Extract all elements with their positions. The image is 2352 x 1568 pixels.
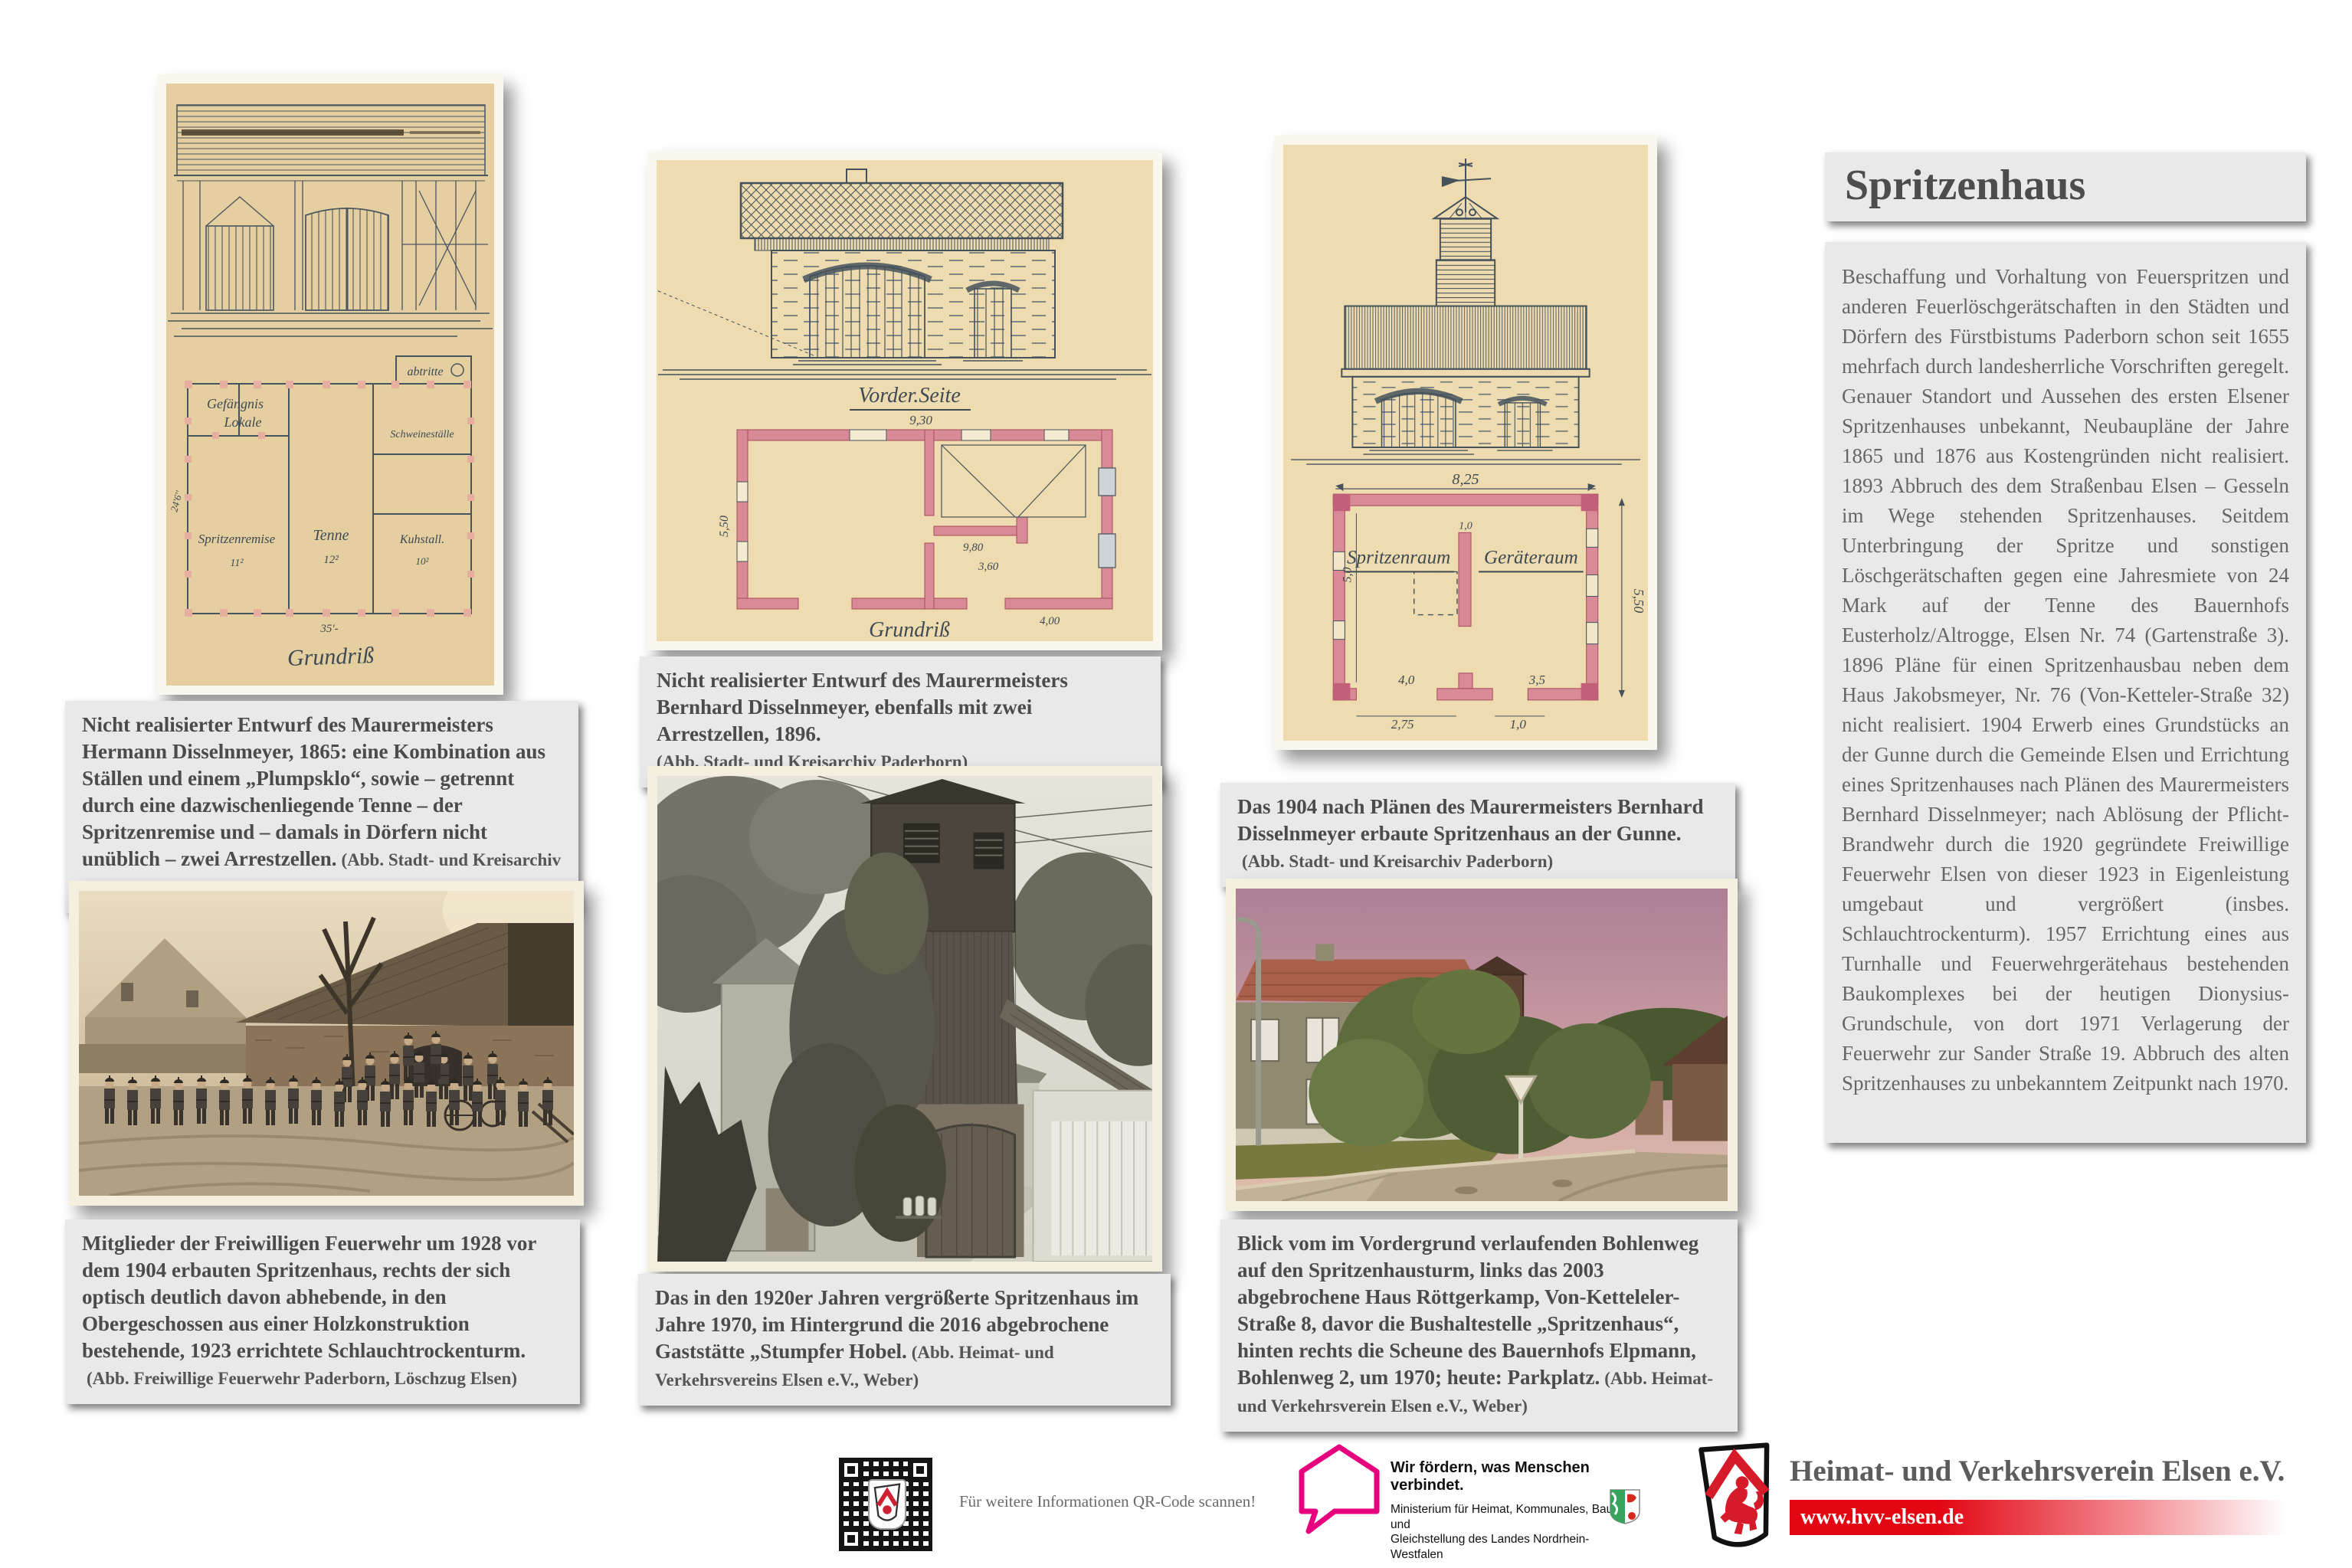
label-d3-dim-b4: 1,0: [1510, 717, 1527, 732]
label-kuhstall: Kuhstall.: [399, 533, 444, 546]
caption-1970-text: Das in den 1920er Jahren vergrößerte Spr…: [655, 1286, 1138, 1363]
caption-photo-1928: Mitglieder der Freiwilligen Feuerwehr um…: [65, 1219, 580, 1404]
qr-finder-icon: [839, 1458, 863, 1482]
drawing-1896-graphic: Vorder.Seite: [657, 160, 1153, 641]
label-grundriss-1: Grundriß: [287, 643, 374, 671]
ministry-slogan: Wir fördern, was Menschen verbindet.: [1391, 1459, 1620, 1494]
label-spritzenraum: Spritzenraum: [1347, 547, 1450, 568]
label-d3-dim-b3: 2,75: [1391, 717, 1414, 732]
caption-1896-text: Nicht realisierter Entwurf des Maurermei…: [657, 669, 1068, 745]
label-gefaengnis: Gefängnis: [207, 396, 264, 411]
ministry-name-line2: Gleichstellung des Landes Nordrhein-West…: [1391, 1532, 1620, 1562]
photo-bohlenweg-1970: [1226, 879, 1738, 1211]
hvv-url-bar: www.hvv-elsen.de: [1790, 1500, 2286, 1535]
page-title: Spritzenhaus: [1845, 160, 2286, 211]
drawing-1904-graphic: 8,25 Spritzenraum: [1283, 145, 1648, 741]
photo-firefighters-graphic: [79, 891, 574, 1196]
caption-1928-credit: (Abb. Freiwillige Feuerwehr Paderborn, L…: [87, 1369, 517, 1388]
ministry-name-line1: Ministerium für Heimat, Kommunales, Bau …: [1391, 1502, 1620, 1532]
label-d3-dim-b1: 4,0: [1398, 673, 1415, 687]
label-dim-left: 24'6'': [168, 489, 185, 513]
caption-1904-text: Das 1904 nach Plänen des Maurermeisters …: [1237, 795, 1703, 845]
label-d2-dim-inner: 3,60: [978, 561, 999, 573]
label-d2-dim-top: 9,30: [909, 413, 932, 427]
photo-spritzenhaus-graphic: [657, 776, 1152, 1262]
caption-1865-text: Nicht realisierter Entwurf des Maurermei…: [82, 713, 545, 870]
qr-center-crest-icon: [868, 1479, 906, 1530]
drawing-1865-plan: Gefängnis Lokale abtritte Schweineställe…: [157, 74, 503, 695]
label-d3-dim-right: 5,50: [1631, 589, 1646, 614]
caption-bohlenweg-text: Blick vom im Vordergrund verlaufenden Bo…: [1237, 1232, 1698, 1389]
caption-drawing-1904: Das 1904 nach Plänen des Maurermeisters …: [1220, 783, 1735, 887]
caption-1928-text: Mitglieder der Freiwilligen Feuerwehr um…: [82, 1232, 536, 1362]
photo-spritzenhaus-1970: [647, 766, 1162, 1272]
label-dim-bottom: 35'-: [319, 623, 338, 635]
label-schweinestaelle: Schweineställe: [390, 429, 454, 440]
nrw-bubble-icon: [1296, 1441, 1382, 1534]
article-body-box: Beschaffung und Vorhaltung von Feuerspri…: [1825, 242, 2306, 1143]
label-kuhstall-size: 10²: [416, 555, 430, 567]
qr-finder-icon: [908, 1458, 932, 1482]
hvv-url: www.hvv-elsen.de: [1790, 1505, 1964, 1530]
label-d3-dim-top: 8,25: [1452, 471, 1479, 488]
label-tenne-size: 12²: [323, 554, 339, 566]
drawing-1896-plan: Vorder.Seite: [647, 151, 1162, 650]
label-remise-size: 11²: [230, 558, 244, 569]
caption-1904-credit: (Abb. Stadt- und Kreisarchiv Paderborn): [1242, 852, 1553, 871]
photo-firefighters-1928: [69, 881, 584, 1206]
article-body: Beschaffung und Vorhaltung von Feuerspri…: [1842, 262, 2289, 1098]
ministry-block: Wir fördern, was Menschen verbindet. Min…: [1391, 1459, 1620, 1562]
label-abtritte: abtritte: [407, 365, 443, 378]
label-d2-dim-left: 5,50: [718, 516, 731, 537]
photo-bohlenweg-graphic: [1236, 889, 1728, 1201]
nrw-heimat-logo: NORDRHEIN- WESTFALEN HEIMATET: [1296, 1441, 1382, 1534]
label-spritzenremise: Spritzenremise: [198, 532, 276, 546]
label-d2-dim-mid: 9,80: [963, 542, 984, 554]
article-title-box: Spritzenhaus: [1825, 152, 2306, 221]
caption-photo-1970: Das in den 1920er Jahren vergrößerte Spr…: [638, 1274, 1171, 1406]
qr-code: [839, 1458, 932, 1551]
hvv-name: Heimat- und Verkehrsverein Elsen e.V.: [1790, 1454, 2295, 1488]
qr-finder-icon: [839, 1527, 863, 1551]
label-lokale: Lokale: [224, 414, 262, 430]
nrw-coat-of-arms-icon: [1609, 1488, 1641, 1525]
drawing-1904-plan: 8,25 Spritzenraum: [1274, 136, 1657, 750]
poster: Gefängnis Lokale abtritte Schweineställe…: [0, 0, 2352, 1568]
label-tenne: Tenne: [313, 527, 349, 544]
label-geraeteraum: Geräteraum: [1484, 547, 1578, 568]
label-d3-dim-center: 1,0: [1459, 519, 1472, 532]
qr-caption: Für weitere Informationen QR-Code scanne…: [959, 1492, 1319, 1511]
drawing-1865-graphic: Gefängnis Lokale abtritte Schweineställe…: [166, 83, 494, 686]
label-vorderseite: Vorder.Seite: [858, 384, 961, 408]
label-grundriss-2: Grundriß: [869, 618, 950, 641]
label-d2-dim-bottom: 4,00: [1040, 615, 1060, 627]
label-d3-dim-b2: 3,5: [1528, 673, 1546, 687]
caption-photo-bohlenweg: Blick vom im Vordergrund verlaufenden Bo…: [1220, 1219, 1738, 1432]
label-d3-dim-left: 5,0: [1341, 567, 1354, 582]
hvv-crest-icon: [1695, 1442, 1780, 1558]
